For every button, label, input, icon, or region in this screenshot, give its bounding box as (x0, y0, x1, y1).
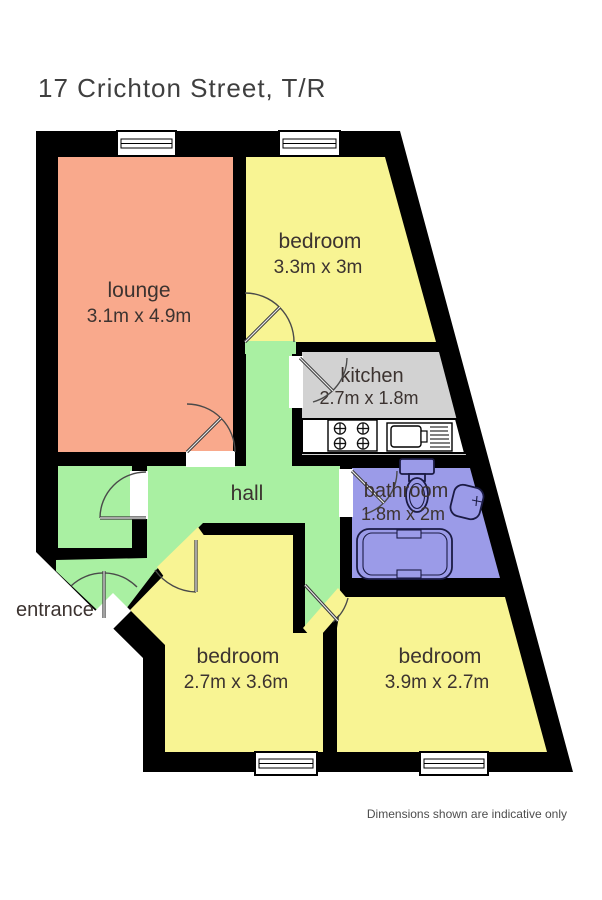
footer-note: Dimensions shown are indicative only (367, 807, 567, 821)
floorplan-canvas: 17 Crichton Street, T/R lounge 3.1m x 4.… (0, 0, 602, 900)
bedroom-left-dims: 2.7m x 3.6m (184, 672, 289, 693)
kitchen-dims: 2.7m x 1.8m (319, 388, 418, 408)
window-lounge (117, 131, 176, 156)
lounge-dims: 3.1m x 4.9m (87, 306, 192, 327)
bathroom-door-threshold (339, 469, 353, 517)
hob-icon (328, 420, 377, 451)
kitchen-label: kitchen (340, 365, 403, 387)
window-bedroom-top (279, 131, 340, 156)
bedroom-top-dims: 3.3m x 3m (274, 257, 363, 278)
lounge-door-threshold (186, 451, 235, 467)
entrance-label: entrance (16, 599, 94, 621)
cupboard-door-threshold (130, 471, 148, 519)
kitchen-sink-icon (387, 423, 452, 451)
bedroom-right-dims: 3.9m x 2.7m (385, 672, 490, 693)
kitchen-door-threshold (289, 356, 303, 408)
bedroom-left-label: bedroom (197, 645, 280, 668)
bedroom-right-label: bedroom (399, 645, 482, 668)
bedroom-top-label: bedroom (279, 230, 362, 253)
page-title: 17 Crichton Street, T/R (38, 73, 326, 103)
bathroom-label: bathroom (364, 480, 449, 502)
hall-label: hall (231, 482, 264, 505)
floorplan-page: 17 Crichton Street, T/R lounge 3.1m x 4.… (0, 0, 602, 900)
window-bedroom-right (420, 752, 488, 775)
hall-cupboard-floor (58, 466, 132, 548)
window-bedroom-left (255, 752, 317, 775)
bathroom-dims: 1.8m x 2m (361, 504, 445, 524)
bedroom-top-door-threshold (245, 341, 296, 354)
lounge-label: lounge (107, 279, 170, 302)
bathtub-icon (357, 529, 452, 579)
kitchen-fixtures (302, 419, 465, 453)
